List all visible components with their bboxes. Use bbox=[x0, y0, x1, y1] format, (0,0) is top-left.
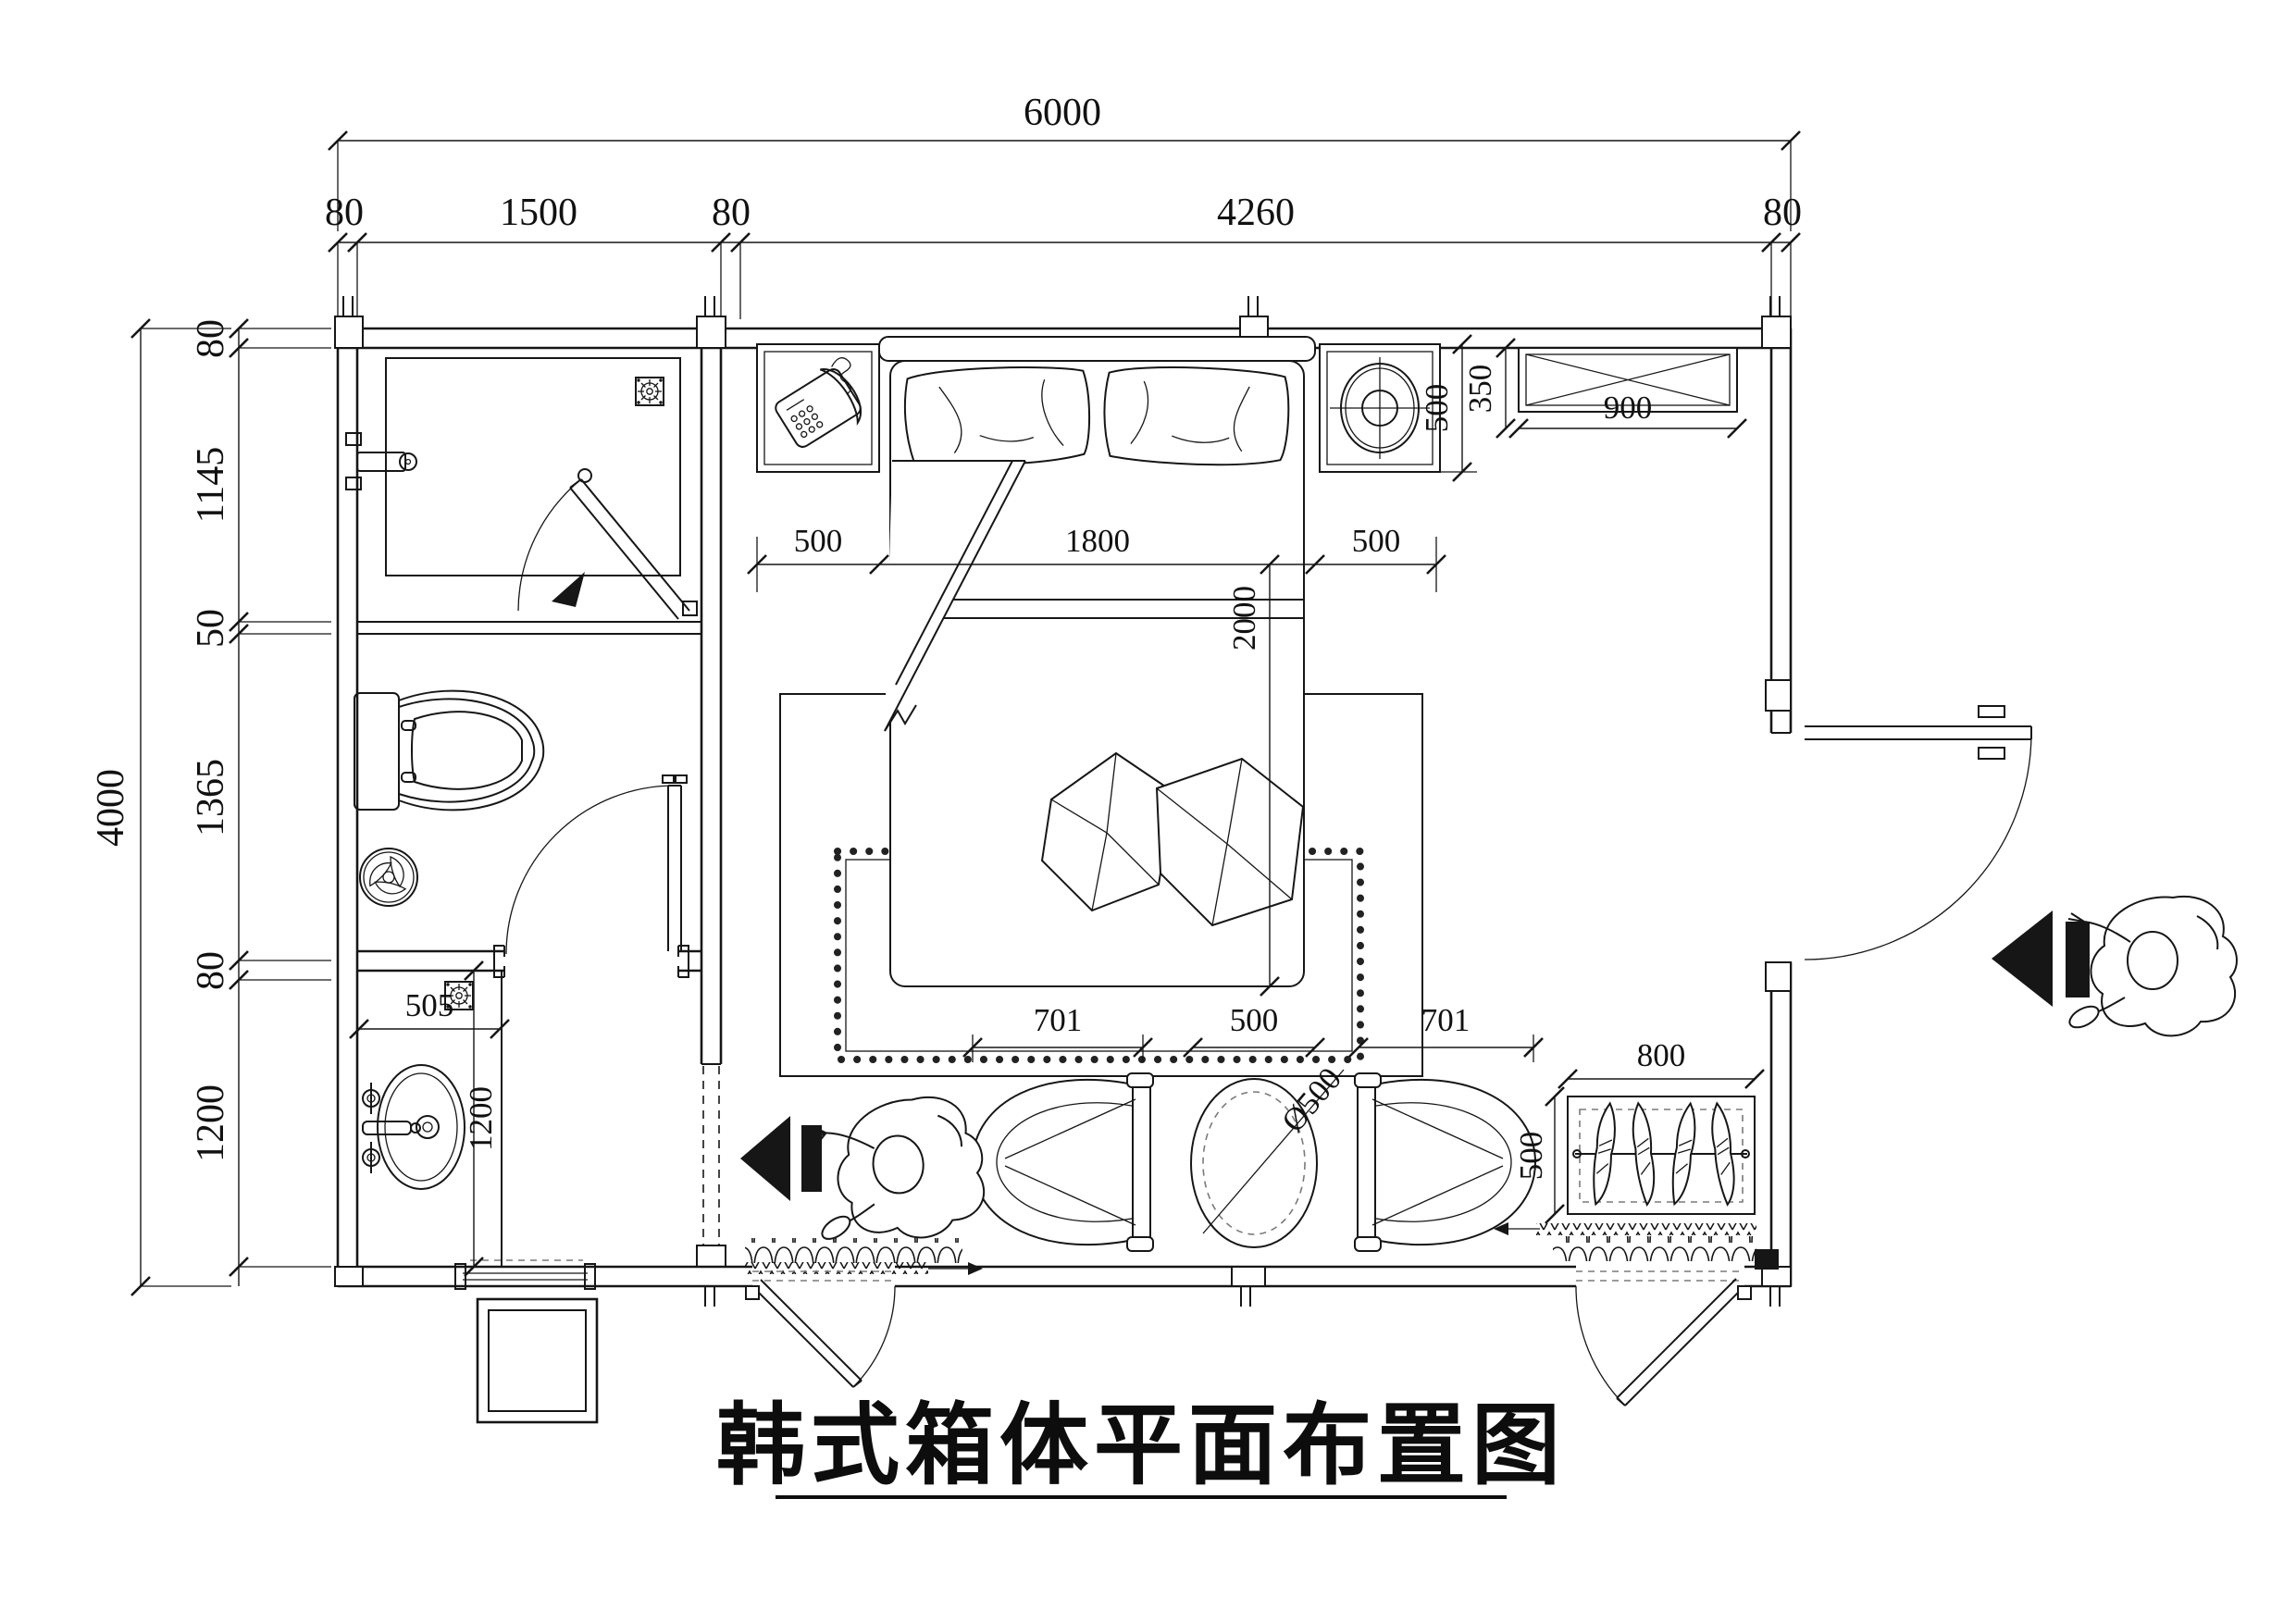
dim-cabinet-depth: 350 bbox=[1462, 365, 1498, 414]
curtain-right-icon bbox=[1494, 1222, 1756, 1261]
dimension-cabinet-depth: 350 bbox=[1462, 339, 1515, 438]
entry-door bbox=[1805, 706, 2031, 960]
dimension-top-segments: 80 1500 80 4260 80 bbox=[325, 192, 1802, 319]
dim-top-1500: 1500 bbox=[500, 192, 577, 234]
step-box bbox=[478, 1299, 597, 1422]
dim-center-gap: 500 bbox=[1230, 1002, 1279, 1038]
floorplan-canvas: 6000 80 1500 80 4260 80 4000 80 1145 50 … bbox=[0, 0, 2296, 1623]
dim-nightstand-depth: 500 bbox=[1419, 384, 1455, 433]
dim-bed-length: 2000 bbox=[1226, 586, 1262, 650]
door-bottom-right bbox=[1576, 1271, 1751, 1406]
bathroom-inner-wall bbox=[357, 946, 701, 977]
dim-vanity-depth: 1200 bbox=[463, 1086, 499, 1151]
nightstand-left bbox=[757, 344, 879, 472]
dim-left-1200: 1200 bbox=[190, 1084, 232, 1162]
dim-left-50: 50 bbox=[190, 609, 232, 648]
dim-top-4260: 4260 bbox=[1217, 192, 1295, 234]
bed-icon bbox=[879, 337, 1315, 986]
dim-bed-left-gap: 500 bbox=[794, 523, 843, 559]
shower-glass-door bbox=[518, 469, 697, 619]
dim-top-total-label: 6000 bbox=[1024, 92, 1101, 134]
dimension-left-segments: 80 1145 50 1365 80 1200 bbox=[190, 319, 331, 1286]
dim-left-80-top: 80 bbox=[190, 319, 232, 358]
floor-drain-icon bbox=[360, 849, 417, 906]
dimension-vanity: 505 1200 bbox=[350, 961, 509, 1276]
toilet-room-door bbox=[506, 775, 687, 954]
person-icon bbox=[2066, 897, 2237, 1035]
exhaust-fan-icon bbox=[636, 378, 664, 405]
dim-cabinet-width: 900 bbox=[1604, 390, 1653, 426]
dim-bed-width: 1800 bbox=[1065, 523, 1130, 559]
armchair-left-icon bbox=[973, 1073, 1153, 1251]
sink-icon bbox=[378, 1065, 465, 1189]
dim-left-1145: 1145 bbox=[190, 447, 232, 523]
dim-bed-right-gap: 500 bbox=[1352, 523, 1401, 559]
swing-arrow-icon bbox=[552, 572, 585, 607]
toilet-room bbox=[354, 691, 687, 954]
dim-chair-left: 701 bbox=[1034, 1002, 1083, 1038]
page-title: 韩式箱体平面布置图 bbox=[716, 1396, 1566, 1495]
dim-top-80-mid: 80 bbox=[712, 192, 751, 234]
dim-left-80-bottom: 80 bbox=[190, 951, 232, 990]
dim-chair-right: 701 bbox=[1421, 1002, 1471, 1038]
toilet-icon bbox=[354, 691, 543, 811]
dim-top-80-right: 80 bbox=[1763, 192, 1802, 234]
dim-wardrobe-width: 800 bbox=[1637, 1037, 1686, 1073]
dim-top-80-left: 80 bbox=[325, 192, 364, 234]
drawing-title: 韩式箱体平面布置图 bbox=[716, 1396, 1566, 1497]
shower-room bbox=[346, 358, 697, 619]
round-table-icon: Ø500 bbox=[1191, 1060, 1348, 1247]
dim-vanity-width: 505 bbox=[405, 987, 454, 1023]
interior-arrow-icon bbox=[740, 1116, 822, 1201]
dim-wardrobe-depth: 500 bbox=[1513, 1132, 1549, 1181]
wardrobe-icon bbox=[1568, 1096, 1755, 1214]
dim-left-total-label: 4000 bbox=[90, 769, 132, 847]
door-bottom-left bbox=[746, 1271, 895, 1387]
partition-wall bbox=[697, 348, 726, 1267]
dim-left-1365: 1365 bbox=[190, 759, 232, 836]
person-icon bbox=[806, 1092, 990, 1248]
curtain-left-icon bbox=[745, 1238, 983, 1275]
